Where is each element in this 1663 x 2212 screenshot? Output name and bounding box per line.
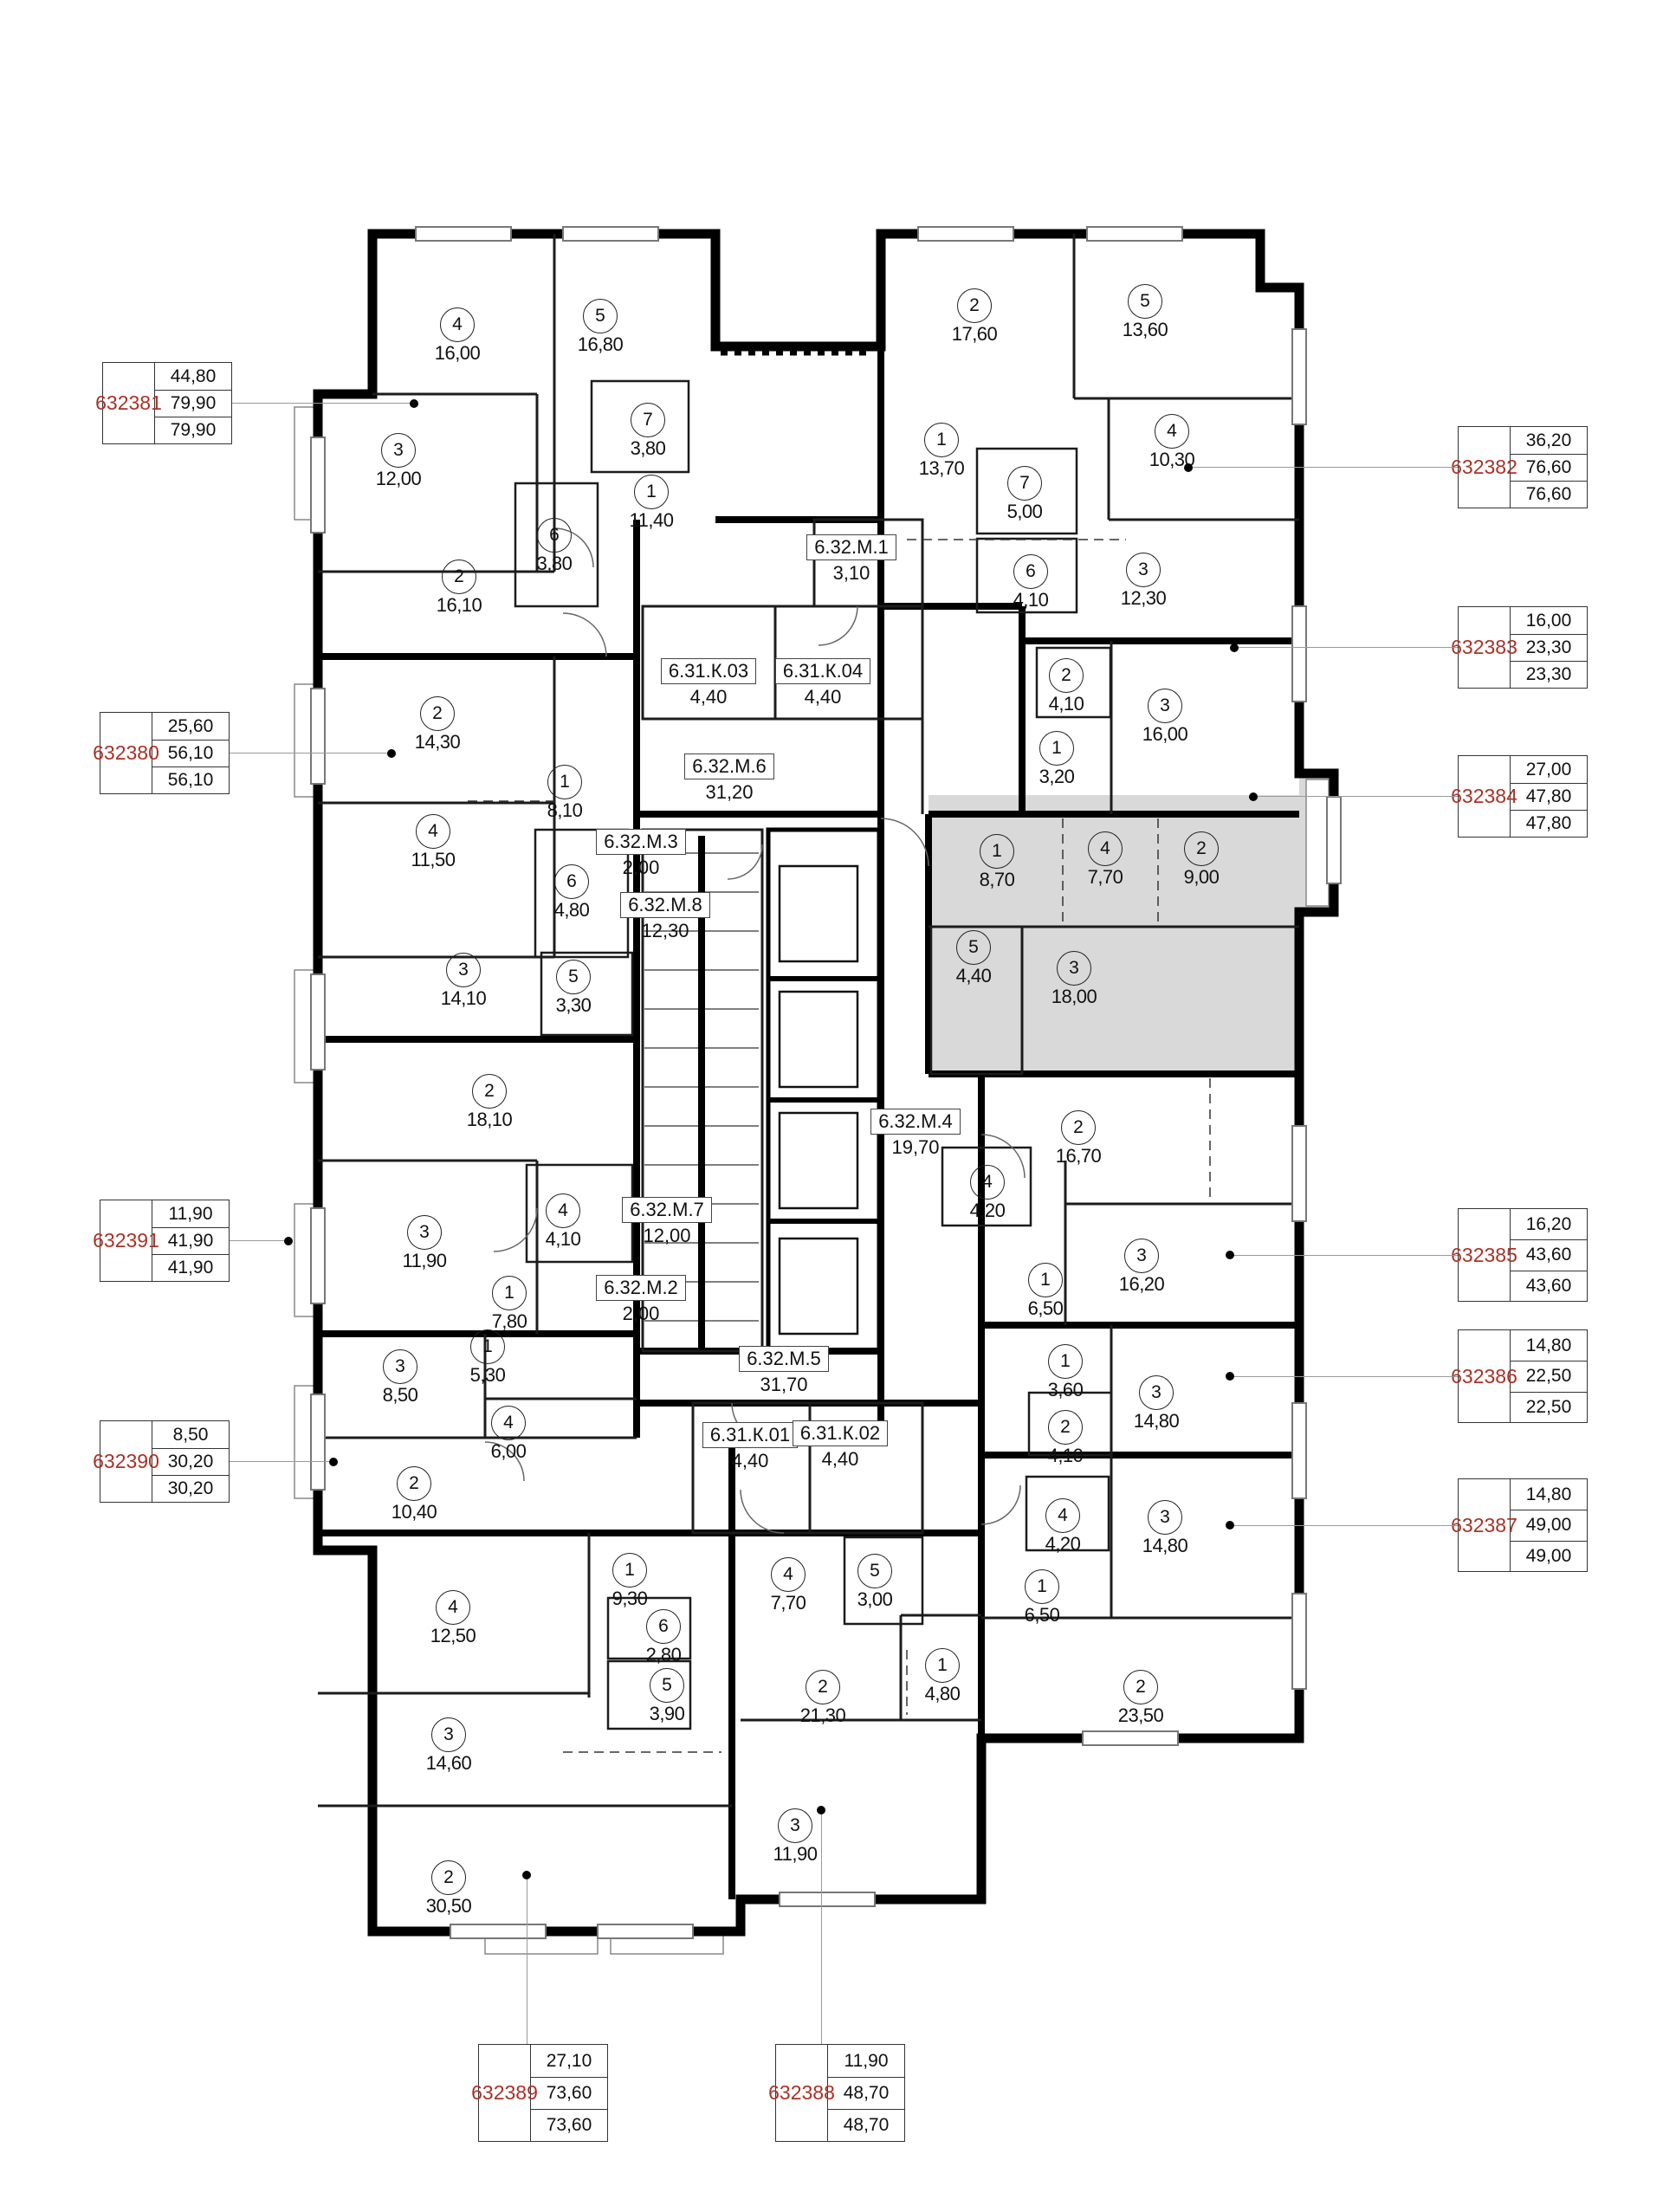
room-marker: 411,50 bbox=[381, 814, 485, 871]
unit-area-value: 73,60 bbox=[531, 2109, 607, 2141]
room-marker: 16,50 bbox=[993, 1263, 1097, 1320]
room-marker: 312,00 bbox=[346, 433, 450, 490]
room-number-circle: 3 bbox=[383, 1349, 417, 1384]
service-room-label: 6.32.М.712,00 bbox=[585, 1197, 749, 1247]
room-number-circle: 3 bbox=[381, 433, 416, 468]
unit-area-value: 73,60 bbox=[531, 2077, 607, 2109]
room-area-label: 4,10 bbox=[546, 1228, 581, 1251]
room-number-circle: 1 bbox=[612, 1553, 647, 1588]
room-marker: 516,80 bbox=[548, 299, 652, 356]
service-room-area: 4,40 bbox=[690, 686, 728, 708]
room-marker: 16,50 bbox=[990, 1569, 1094, 1627]
room-marker: 29,00 bbox=[1149, 831, 1253, 889]
leader-line bbox=[230, 1240, 288, 1241]
room-area-label: 4,20 bbox=[970, 1200, 1006, 1222]
room-number-circle: 6 bbox=[1013, 554, 1048, 589]
service-room-label: 6.32.М.22,00 bbox=[559, 1275, 723, 1325]
room-area-label: 4,10 bbox=[1049, 693, 1084, 715]
unit-id: 632381 bbox=[103, 363, 155, 443]
leader-dot bbox=[329, 1458, 338, 1466]
unit-area-value: 48,70 bbox=[828, 2077, 904, 2109]
room-number-circle: 2 bbox=[957, 288, 992, 323]
room-area-label: 3,00 bbox=[857, 1588, 893, 1611]
service-room-label: 6.32.М.531,70 bbox=[702, 1346, 866, 1396]
service-room-area: 12,30 bbox=[641, 920, 689, 942]
unit-area-value: 14,80 bbox=[1511, 1479, 1587, 1510]
room-marker: 44,20 bbox=[1011, 1498, 1115, 1556]
room-marker: 73,80 bbox=[596, 403, 700, 460]
room-area-label: 18,00 bbox=[1052, 986, 1097, 1008]
room-number-circle: 4 bbox=[970, 1165, 1005, 1200]
unit-area-value: 56,10 bbox=[152, 740, 229, 766]
room-area-label: 14,80 bbox=[1142, 1535, 1188, 1557]
room-number-circle: 4 bbox=[771, 1557, 806, 1592]
room-area-label: 8,10 bbox=[547, 799, 583, 822]
leader-dot bbox=[1226, 1372, 1234, 1381]
room-marker: 53,90 bbox=[615, 1668, 719, 1725]
room-number-circle: 2 bbox=[806, 1670, 840, 1704]
unit-area-value: 48,70 bbox=[828, 2109, 904, 2141]
unit-area-value: 47,80 bbox=[1511, 783, 1587, 810]
room-area-label: 7,70 bbox=[1088, 866, 1123, 889]
unit-id: 632386 bbox=[1459, 1330, 1511, 1422]
leader-line bbox=[1230, 1525, 1458, 1526]
service-room-code: 6.32.М.7 bbox=[622, 1197, 712, 1223]
room-marker: 54,40 bbox=[922, 930, 1026, 987]
room-marker: 18,10 bbox=[513, 765, 617, 822]
room-marker: 63,80 bbox=[502, 518, 606, 575]
room-marker: 216,70 bbox=[1026, 1110, 1130, 1167]
room-number-circle: 5 bbox=[857, 1554, 892, 1588]
unit-label-632381[interactable]: 63238144,8079,9079,90 bbox=[102, 362, 232, 444]
room-marker: 410,30 bbox=[1120, 414, 1224, 471]
unit-areas: 36,2076,6076,60 bbox=[1511, 427, 1587, 508]
room-number-circle: 1 bbox=[634, 475, 669, 509]
room-number-circle: 1 bbox=[925, 1648, 960, 1683]
unit-id: 632390 bbox=[100, 1421, 152, 1502]
room-number-circle: 3 bbox=[407, 1215, 442, 1250]
room-number-circle: 5 bbox=[583, 299, 618, 333]
service-room-label: 6.32.М.631,20 bbox=[647, 754, 812, 804]
room-number-circle: 3 bbox=[431, 1717, 466, 1752]
room-area-label: 10,40 bbox=[391, 1501, 437, 1523]
unit-id: 632389 bbox=[479, 2045, 531, 2141]
room-marker: 314,80 bbox=[1104, 1375, 1208, 1433]
room-area-label: 2,80 bbox=[646, 1644, 682, 1666]
room-area-label: 16,00 bbox=[435, 342, 481, 365]
room-number-circle: 5 bbox=[1128, 284, 1162, 319]
leader-dot bbox=[1226, 1251, 1234, 1259]
unit-label-632391[interactable]: 63239111,9041,9041,90 bbox=[100, 1200, 230, 1282]
room-marker: 14,80 bbox=[890, 1648, 994, 1705]
room-area-label: 17,60 bbox=[952, 323, 998, 346]
room-number-circle: 3 bbox=[778, 1808, 812, 1843]
room-area-label: 4,10 bbox=[1013, 589, 1049, 611]
room-number-circle: 7 bbox=[1007, 466, 1042, 501]
room-number-circle: 1 bbox=[1039, 731, 1074, 766]
unit-area-value: 43,60 bbox=[1511, 1271, 1587, 1301]
room-area-label: 3,60 bbox=[1048, 1379, 1084, 1401]
service-room-label: 6.32.М.13,10 bbox=[769, 534, 934, 585]
unit-id: 632385 bbox=[1459, 1209, 1511, 1301]
unit-area-value: 11,90 bbox=[828, 2045, 904, 2077]
room-area-label: 16,10 bbox=[437, 594, 482, 617]
room-area-label: 11,90 bbox=[403, 1250, 447, 1272]
room-marker: 38,50 bbox=[348, 1349, 452, 1407]
service-room-code: 6.31.К.02 bbox=[793, 1420, 888, 1446]
unit-areas: 16,0023,3023,30 bbox=[1511, 607, 1587, 688]
unit-areas: 14,8022,5022,50 bbox=[1511, 1330, 1587, 1422]
room-number-circle: 2 bbox=[1184, 831, 1219, 866]
room-area-label: 8,70 bbox=[980, 869, 1015, 891]
unit-area-value: 49,00 bbox=[1511, 1510, 1587, 1540]
unit-areas: 16,2043,6043,60 bbox=[1511, 1209, 1587, 1301]
room-area-label: 12,00 bbox=[376, 468, 422, 490]
unit-area-value: 30,20 bbox=[152, 1475, 229, 1502]
leader-line bbox=[230, 1461, 333, 1462]
room-marker: 412,50 bbox=[401, 1590, 505, 1647]
service-room-area: 31,20 bbox=[705, 781, 753, 804]
leader-dot bbox=[1230, 644, 1239, 652]
unit-area-value: 22,50 bbox=[1511, 1392, 1587, 1422]
service-room-code: 6.32.М.6 bbox=[684, 754, 774, 779]
leader-line bbox=[1230, 1376, 1458, 1377]
room-marker: 221,30 bbox=[771, 1670, 875, 1727]
unit-label-632383[interactable]: 63238316,0023,3023,30 bbox=[1458, 606, 1588, 689]
room-marker: 47,70 bbox=[1053, 831, 1157, 889]
room-number-circle: 3 bbox=[1124, 1239, 1159, 1273]
room-area-label: 16,80 bbox=[578, 333, 624, 356]
room-area-label: 12,30 bbox=[1121, 587, 1167, 610]
unit-id: 632383 bbox=[1459, 607, 1511, 688]
room-area-label: 16,00 bbox=[1142, 723, 1188, 746]
leader-dot bbox=[1226, 1521, 1234, 1530]
room-number-circle: 2 bbox=[472, 1074, 507, 1109]
room-number-circle: 5 bbox=[650, 1668, 684, 1703]
unit-areas: 44,8079,9079,90 bbox=[155, 363, 231, 443]
service-room-area: 3,10 bbox=[833, 562, 870, 585]
room-area-label: 14,10 bbox=[441, 987, 487, 1010]
unit-id: 632388 bbox=[776, 2045, 828, 2141]
room-marker: 19,30 bbox=[578, 1553, 682, 1610]
room-marker: 216,10 bbox=[407, 559, 511, 617]
unit-label-632388[interactable]: 63238811,9048,7048,70 bbox=[775, 2044, 905, 2142]
room-marker: 62,80 bbox=[611, 1609, 715, 1666]
unit-area-value: 16,20 bbox=[1511, 1209, 1587, 1239]
room-marker: 318,00 bbox=[1022, 951, 1126, 1008]
room-marker: 513,60 bbox=[1093, 284, 1197, 341]
room-area-label: 3,80 bbox=[631, 437, 666, 460]
leader-dot bbox=[284, 1237, 293, 1245]
unit-id: 632382 bbox=[1459, 427, 1511, 508]
service-room-code: 6.32.М.8 bbox=[620, 892, 710, 918]
room-marker: 111,40 bbox=[599, 475, 703, 532]
service-room-code: 6.32.М.2 bbox=[596, 1275, 686, 1301]
unit-area-value: 43,60 bbox=[1511, 1239, 1587, 1270]
unit-areas: 11,9041,9041,90 bbox=[152, 1200, 229, 1281]
room-area-label: 11,50 bbox=[411, 849, 456, 871]
unit-areas: 25,6056,1056,10 bbox=[152, 713, 229, 793]
room-marker: 311,90 bbox=[743, 1808, 847, 1866]
room-marker: 316,00 bbox=[1113, 689, 1217, 746]
unit-area-value: 23,30 bbox=[1511, 634, 1587, 661]
room-marker: 210,40 bbox=[362, 1466, 466, 1523]
room-number-circle: 2 bbox=[1048, 1410, 1083, 1445]
room-area-label: 5,00 bbox=[1007, 501, 1043, 523]
room-marker: 17,80 bbox=[457, 1276, 561, 1333]
room-marker: 214,30 bbox=[385, 696, 489, 754]
leader-dot bbox=[387, 749, 396, 758]
unit-label-632380[interactable]: 63238025,6056,1056,10 bbox=[100, 712, 230, 794]
room-number-circle: 6 bbox=[646, 1609, 681, 1644]
unit-label-632386[interactable]: 63238614,8022,5022,50 bbox=[1458, 1329, 1588, 1423]
room-marker: 416,00 bbox=[405, 307, 509, 365]
room-marker: 44,20 bbox=[935, 1165, 1039, 1222]
service-room-code: 6.32.М.4 bbox=[870, 1109, 961, 1135]
leader-line bbox=[1253, 796, 1458, 797]
unit-id: 632384 bbox=[1459, 756, 1511, 837]
room-area-label: 21,30 bbox=[800, 1704, 846, 1727]
highlighted-unit-area[interactable] bbox=[929, 775, 1332, 1074]
room-number-circle: 2 bbox=[1061, 1110, 1096, 1145]
unit-area-value: 47,80 bbox=[1511, 810, 1587, 837]
service-room-code: 6.31.К.04 bbox=[775, 658, 870, 684]
room-area-label: 3,80 bbox=[537, 553, 573, 575]
leader-line bbox=[232, 403, 414, 404]
unit-area-value: 79,90 bbox=[155, 390, 231, 417]
room-area-label: 13,60 bbox=[1123, 319, 1168, 341]
leader-line bbox=[821, 1810, 822, 2044]
room-area-label: 3,20 bbox=[1039, 766, 1075, 788]
room-number-circle: 4 bbox=[546, 1193, 580, 1228]
unit-areas: 27,0047,8047,80 bbox=[1511, 756, 1587, 837]
service-room-label: 6.32.М.812,30 bbox=[583, 892, 747, 942]
unit-label-632382[interactable]: 63238236,2076,6076,60 bbox=[1458, 426, 1588, 508]
room-number-circle: 2 bbox=[420, 696, 455, 731]
room-number-circle: 1 bbox=[924, 423, 959, 457]
service-room-area: 19,70 bbox=[891, 1136, 939, 1159]
room-marker: 64,10 bbox=[979, 554, 1083, 611]
elevator-bank bbox=[768, 830, 879, 1351]
service-room-area: 4,40 bbox=[805, 686, 842, 708]
service-room-code: 6.32.М.1 bbox=[806, 534, 896, 560]
service-room-area: 12,00 bbox=[643, 1225, 690, 1247]
service-room-area: 31,70 bbox=[760, 1374, 807, 1396]
room-area-label: 6,50 bbox=[1025, 1604, 1060, 1627]
room-area-label: 16,20 bbox=[1119, 1273, 1165, 1296]
room-area-label: 14,30 bbox=[415, 731, 461, 754]
room-marker: 18,70 bbox=[945, 834, 1049, 891]
room-number-circle: 1 bbox=[492, 1276, 527, 1310]
room-area-label: 14,80 bbox=[1134, 1410, 1180, 1433]
room-area-label: 11,90 bbox=[773, 1843, 818, 1866]
room-number-circle: 4 bbox=[1045, 1498, 1080, 1533]
room-marker: 24,10 bbox=[1014, 658, 1118, 715]
room-area-label: 23,50 bbox=[1118, 1704, 1164, 1727]
unit-area-value: 79,90 bbox=[155, 417, 231, 443]
unit-id: 632380 bbox=[100, 713, 152, 793]
unit-area-value: 25,60 bbox=[152, 713, 229, 740]
unit-label-632385[interactable]: 63238516,2043,6043,60 bbox=[1458, 1208, 1588, 1302]
room-number-circle: 1 bbox=[1028, 1263, 1063, 1297]
unit-area-value: 14,80 bbox=[1511, 1330, 1587, 1361]
unit-area-value: 76,60 bbox=[1511, 481, 1587, 508]
room-area-label: 16,70 bbox=[1056, 1145, 1102, 1167]
unit-label-632387[interactable]: 63238714,8049,0049,00 bbox=[1458, 1478, 1588, 1572]
service-room-label: 6.32.М.419,70 bbox=[833, 1109, 998, 1159]
leader-line bbox=[1234, 647, 1458, 648]
room-number-circle: 4 bbox=[440, 307, 475, 342]
room-area-label: 9,00 bbox=[1184, 866, 1220, 889]
room-number-circle: 2 bbox=[431, 1860, 466, 1895]
unit-id: 632391 bbox=[100, 1200, 152, 1281]
room-number-circle: 1 bbox=[1025, 1569, 1059, 1604]
room-area-label: 5,30 bbox=[470, 1364, 506, 1387]
room-area-label: 30,50 bbox=[426, 1895, 472, 1918]
service-room-label: 6.32.М.32,00 bbox=[559, 829, 723, 879]
room-area-label: 11,40 bbox=[630, 509, 674, 532]
unit-area-value: 36,20 bbox=[1511, 427, 1587, 454]
room-area-label: 9,30 bbox=[612, 1588, 648, 1610]
room-number-circle: 7 bbox=[631, 403, 665, 437]
room-area-label: 12,50 bbox=[430, 1625, 476, 1647]
room-number-circle: 3 bbox=[1148, 1500, 1182, 1535]
room-marker: 218,10 bbox=[437, 1074, 541, 1131]
unit-area-value: 8,50 bbox=[152, 1421, 229, 1448]
leader-line bbox=[1188, 467, 1458, 468]
unit-area-value: 44,80 bbox=[155, 363, 231, 390]
room-area-label: 13,70 bbox=[919, 457, 965, 480]
room-marker: 53,00 bbox=[823, 1554, 927, 1611]
room-marker: 53,30 bbox=[521, 960, 625, 1017]
unit-area-value: 41,90 bbox=[152, 1227, 229, 1254]
room-marker: 223,50 bbox=[1089, 1670, 1193, 1727]
unit-areas: 8,5030,2030,20 bbox=[152, 1421, 229, 1502]
room-number-circle: 5 bbox=[556, 960, 591, 994]
room-marker: 314,80 bbox=[1113, 1500, 1217, 1557]
unit-area-value: 27,00 bbox=[1511, 756, 1587, 783]
floorplan-canvas: 416,00516,80312,0073,80111,4063,80216,10… bbox=[0, 0, 1663, 2212]
unit-label-632390[interactable]: 6323908,5030,2030,20 bbox=[100, 1420, 230, 1503]
unit-area-value: 11,90 bbox=[152, 1200, 229, 1227]
room-area-label: 6,00 bbox=[491, 1440, 527, 1463]
room-number-circle: 4 bbox=[1155, 414, 1189, 449]
leader-line bbox=[527, 1875, 527, 2044]
unit-area-value: 16,00 bbox=[1511, 607, 1587, 634]
room-area-label: 8,50 bbox=[383, 1384, 418, 1407]
room-marker: 316,20 bbox=[1090, 1239, 1194, 1296]
room-area-label: 18,10 bbox=[467, 1109, 513, 1131]
room-number-circle: 1 bbox=[547, 765, 582, 799]
room-marker: 312,30 bbox=[1091, 553, 1195, 610]
leader-dot bbox=[817, 1806, 825, 1814]
room-area-label: 14,60 bbox=[426, 1752, 472, 1775]
unit-label-632384[interactable]: 63238427,0047,8047,80 bbox=[1458, 755, 1588, 838]
leader-line bbox=[230, 753, 391, 754]
leader-dot bbox=[522, 1871, 531, 1879]
walls-layer bbox=[0, 0, 1663, 2212]
unit-area-value: 76,60 bbox=[1511, 454, 1587, 481]
service-room-label: 6.31.К.044,40 bbox=[741, 658, 905, 708]
unit-areas: 11,9048,7048,70 bbox=[828, 2045, 904, 2141]
room-area-label: 7,70 bbox=[771, 1592, 806, 1614]
room-area-label: 3,90 bbox=[650, 1703, 685, 1725]
room-marker: 75,00 bbox=[973, 466, 1077, 523]
unit-area-value: 56,10 bbox=[152, 766, 229, 793]
room-number-circle: 1 bbox=[980, 834, 1014, 869]
unit-areas: 27,1073,6073,60 bbox=[531, 2045, 607, 2141]
room-area-label: 4,40 bbox=[956, 965, 992, 987]
room-number-circle: 3 bbox=[1148, 689, 1182, 723]
unit-area-value: 27,10 bbox=[531, 2045, 607, 2077]
room-area-label: 4,10 bbox=[1048, 1445, 1084, 1467]
room-area-label: 4,20 bbox=[1045, 1533, 1081, 1556]
room-marker: 13,20 bbox=[1005, 731, 1109, 788]
room-number-circle: 3 bbox=[1057, 951, 1091, 986]
room-area-label: 4,80 bbox=[925, 1683, 961, 1705]
room-marker: 24,10 bbox=[1013, 1410, 1117, 1467]
room-number-circle: 4 bbox=[1088, 831, 1123, 866]
room-number-circle: 1 bbox=[470, 1329, 505, 1364]
room-marker: 314,60 bbox=[397, 1717, 501, 1775]
room-marker: 46,00 bbox=[456, 1406, 560, 1463]
room-marker: 311,90 bbox=[372, 1215, 476, 1272]
room-number-circle: 2 bbox=[397, 1466, 431, 1501]
room-number-circle: 4 bbox=[436, 1590, 470, 1625]
room-marker: 217,60 bbox=[922, 288, 1026, 346]
service-room-area: 2,00 bbox=[623, 1303, 660, 1325]
leader-dot bbox=[410, 399, 418, 408]
room-number-circle: 1 bbox=[1048, 1344, 1083, 1379]
room-number-circle: 3 bbox=[1139, 1375, 1174, 1410]
leader-dot bbox=[1249, 792, 1258, 801]
room-area-label: 3,30 bbox=[556, 994, 592, 1017]
leader-line bbox=[1230, 1255, 1458, 1256]
room-number-circle: 5 bbox=[956, 930, 991, 965]
room-area-label: 6,50 bbox=[1028, 1297, 1064, 1320]
unit-area-value: 22,50 bbox=[1511, 1361, 1587, 1391]
service-room-code: 6.32.М.5 bbox=[739, 1346, 829, 1372]
service-room-label: 6.31.К.024,40 bbox=[758, 1420, 922, 1471]
room-number-circle: 2 bbox=[442, 559, 476, 594]
room-number-circle: 4 bbox=[416, 814, 450, 849]
unit-label-632389[interactable]: 63238927,1073,6073,60 bbox=[478, 2044, 608, 2142]
room-number-circle: 6 bbox=[537, 518, 572, 553]
service-room-area: 2,00 bbox=[623, 857, 660, 879]
unit-area-value: 49,00 bbox=[1511, 1541, 1587, 1571]
room-number-circle: 3 bbox=[446, 953, 481, 987]
room-marker: 13,60 bbox=[1013, 1344, 1117, 1401]
room-number-circle: 3 bbox=[1126, 553, 1161, 587]
service-room-area: 4,40 bbox=[822, 1448, 859, 1471]
room-number-circle: 2 bbox=[1049, 658, 1084, 693]
unit-area-value: 41,90 bbox=[152, 1254, 229, 1281]
room-marker: 230,50 bbox=[397, 1860, 501, 1918]
unit-area-value: 30,20 bbox=[152, 1448, 229, 1475]
room-number-circle: 2 bbox=[1123, 1670, 1158, 1704]
leader-dot bbox=[1184, 463, 1193, 472]
unit-areas: 14,8049,0049,00 bbox=[1511, 1479, 1587, 1571]
unit-id: 632387 bbox=[1459, 1479, 1511, 1571]
service-room-code: 6.32.М.3 bbox=[596, 829, 686, 855]
room-number-circle: 4 bbox=[491, 1406, 526, 1440]
room-marker: 314,10 bbox=[411, 953, 515, 1010]
unit-area-value: 23,30 bbox=[1511, 661, 1587, 688]
